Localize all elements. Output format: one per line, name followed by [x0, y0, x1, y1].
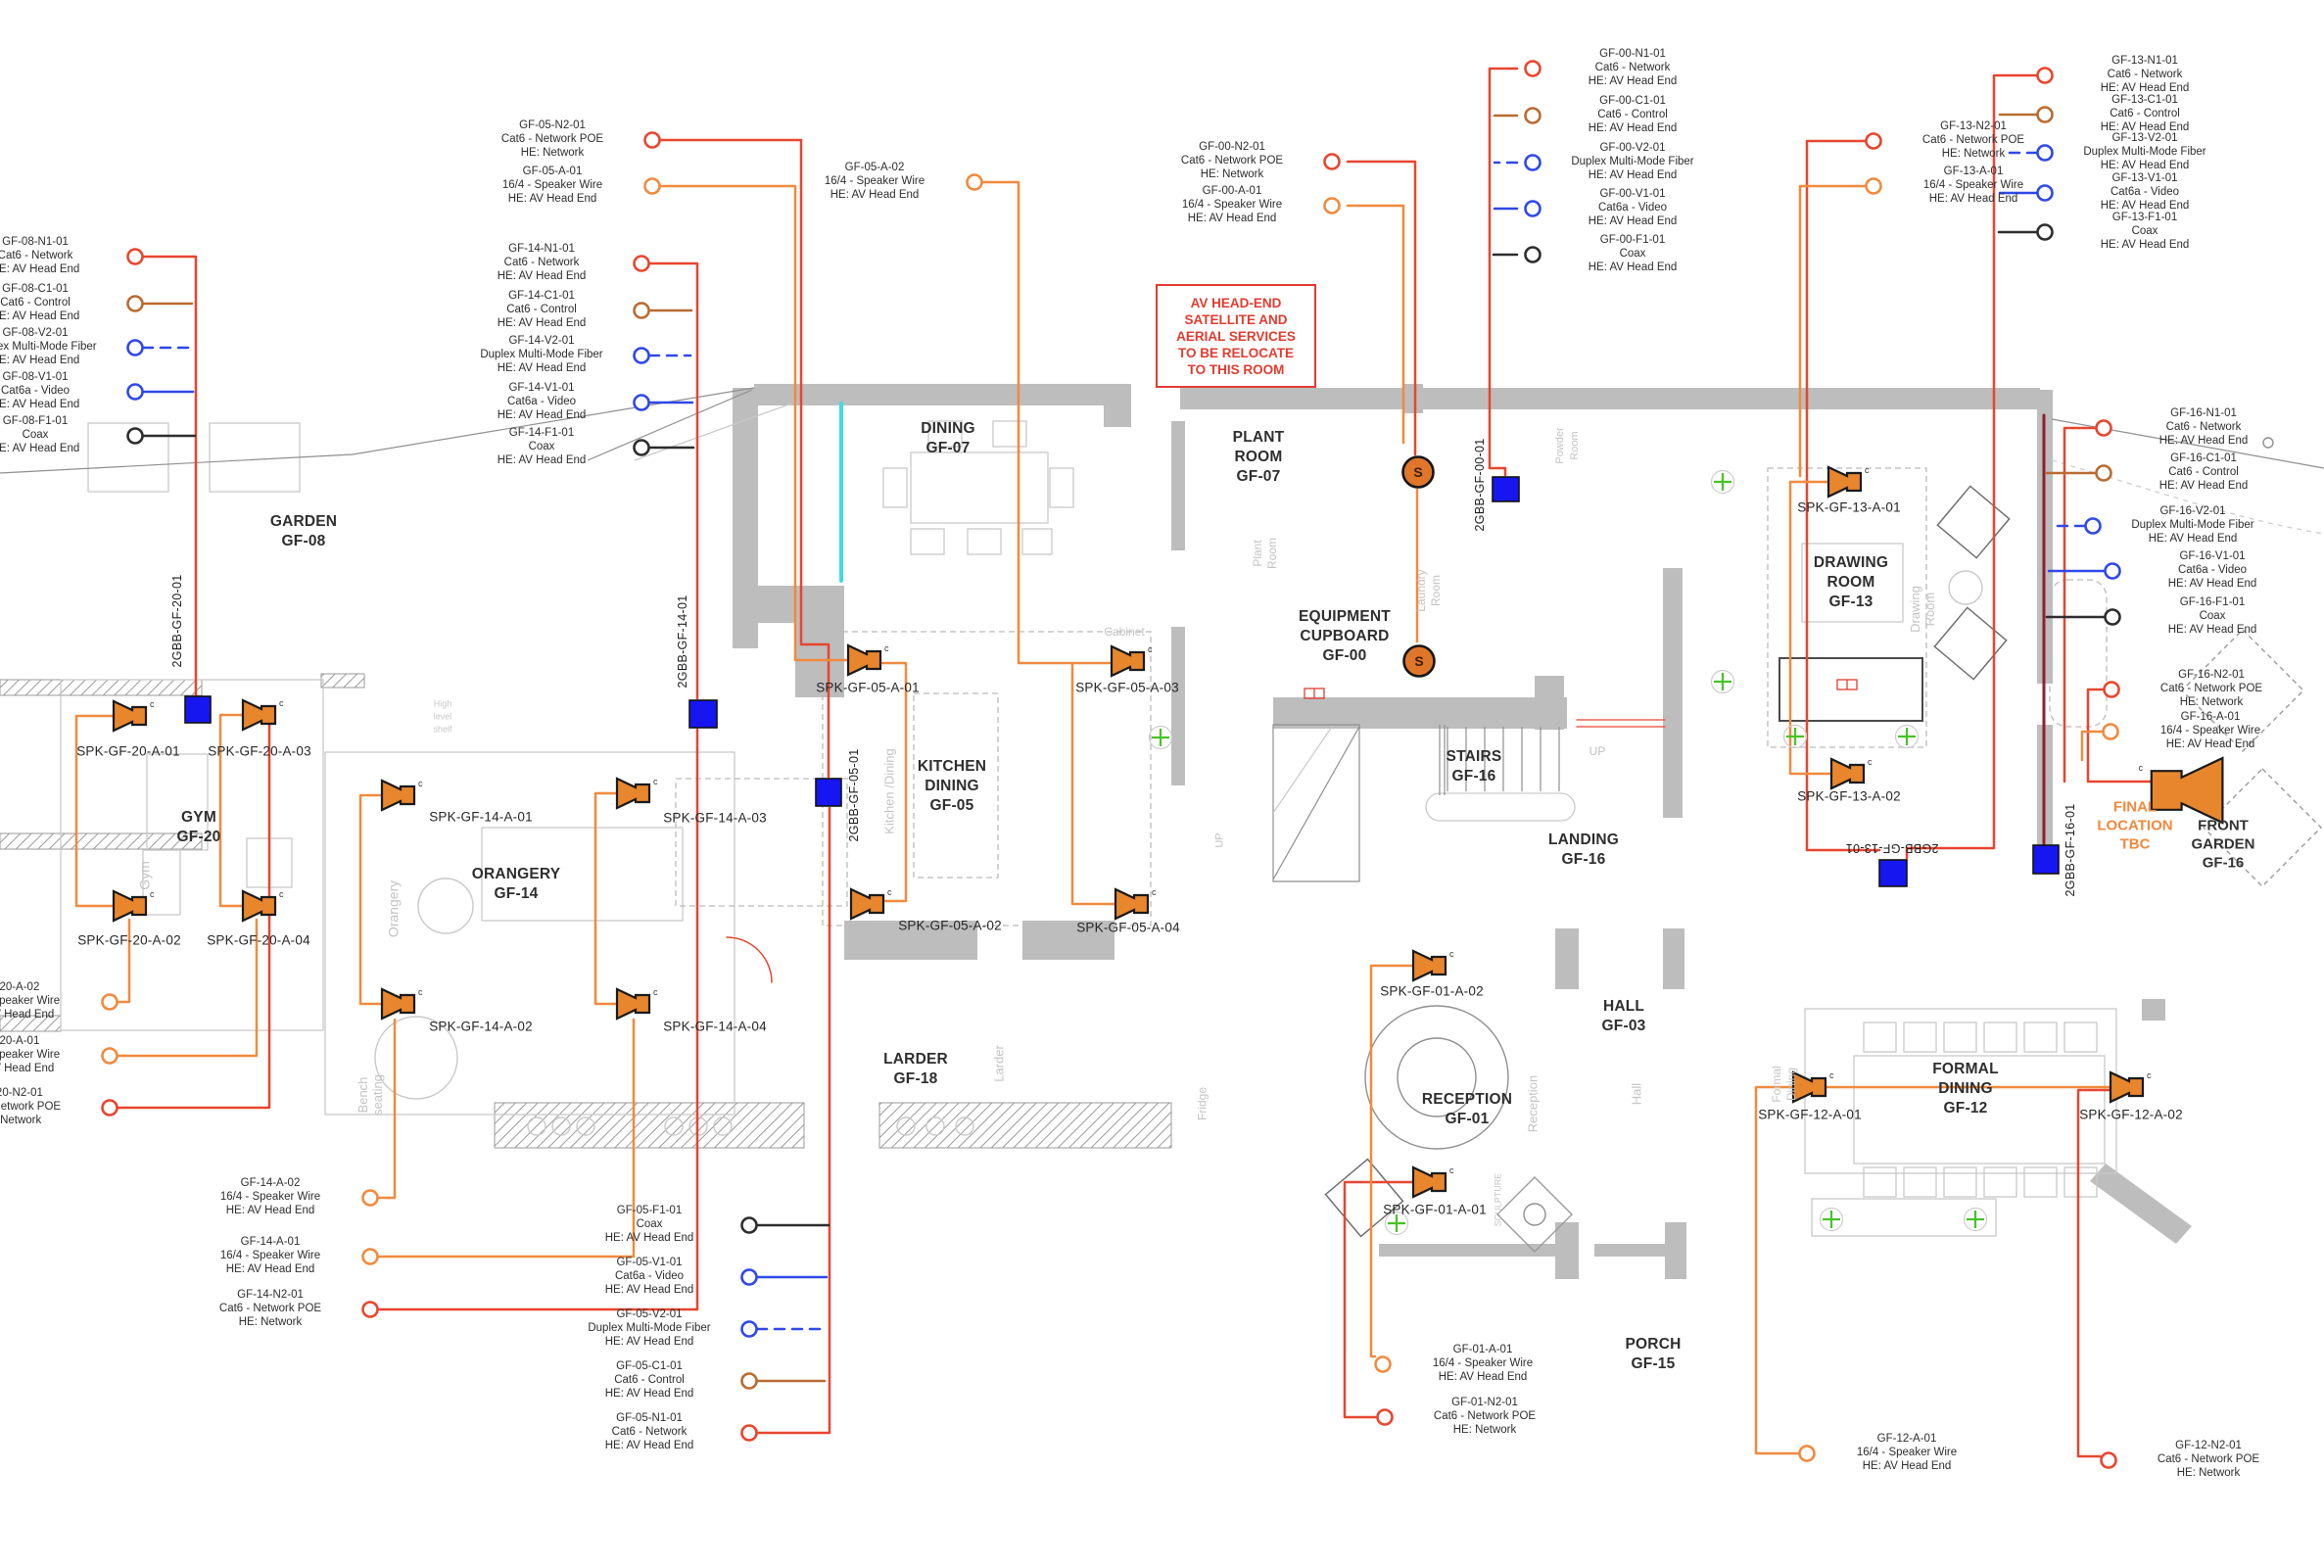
- cable-callout: GF-08-V1-01Cat6a - VideoHE: AV Head End: [0, 371, 122, 411]
- room-label-reception: RECEPTION GF-01: [1422, 1090, 1512, 1129]
- cable-callout-line: 16/4 - Speaker Wire: [183, 1250, 357, 1263]
- cable-callout-line: HE: AV Head End: [0, 310, 122, 324]
- cable-callout: GF-16-C1-01Cat6 - ControlHE: AV Head End: [2116, 452, 2291, 493]
- cable-callout-line: Coax: [2058, 225, 2232, 239]
- room-label-formal-dining: FORMAL DINING GF-12: [1932, 1060, 1999, 1118]
- cable-callout-line: HE: AV Head End: [465, 193, 640, 207]
- cable-callout: GF-00-C1-01Cat6 - ControlHE: AV Head End: [1545, 95, 1720, 135]
- speaker-label: SPK-GF-05-A-01: [816, 681, 920, 695]
- cable-callout: GF-08-C1-01Cat6 - ControlHE: AV Head End: [0, 283, 122, 323]
- cable-callout-line: HE: AV Head End: [2058, 239, 2232, 253]
- cable-callout-line: 16/4 - Speaker Wire: [1886, 179, 2061, 193]
- cable-callout: GF-14-N1-01Cat6 - NetworkHE: AV Head End: [454, 243, 629, 283]
- cable-callout-line: GF-14-A-01: [183, 1236, 357, 1250]
- speaker-label: SPK-GF-01-A-01: [1383, 1203, 1487, 1217]
- cable-callout-line: Cat6a - Video: [2125, 564, 2300, 578]
- cable-callout-line: HE: AV Head End: [0, 443, 122, 456]
- cable-callout-line: GF-00-V1-01: [1545, 188, 1720, 202]
- cable-callout: GF-14-C1-01Cat6 - ControlHE: AV Head End: [454, 290, 629, 330]
- cable-callout: GF-00-N2-01Cat6 - Network POEHE: Network: [1145, 141, 1319, 181]
- label-overlay: 2GBB-GF-20-012GBB-GF-14-012GBB-GF-05-012…: [0, 0, 2324, 1568]
- cable-callout-line: Cat6 - Network POE: [1886, 134, 2061, 148]
- cable-callout-line: GF-00-N1-01: [1545, 48, 1720, 62]
- annotation-high-level-shelf: High level shelf: [433, 698, 451, 736]
- cable-callout-line: 16/4 - Speaker Wire: [0, 995, 97, 1009]
- junction-box-label: 2GBB-GF-20-01: [170, 575, 184, 668]
- cable-callout-line: 16/4 - Speaker Wire: [465, 179, 640, 193]
- cable-callout-line: GF-05-C1-01: [562, 1360, 736, 1374]
- room-label-kitchen-dining: KITCHEN DINING GF-05: [918, 757, 986, 816]
- faint-room-label: Gym: [138, 861, 153, 890]
- cable-callout-line: HE: AV Head End: [1545, 122, 1720, 136]
- room-label-dining: DINING GF-07: [921, 419, 974, 458]
- cable-callout-line: HE: Network: [2121, 1467, 2296, 1481]
- cable-callout-line: GF-16-F1-01: [2125, 596, 2300, 610]
- cable-callout-line: HE: Network: [1145, 168, 1319, 182]
- cable-callout-line: GF-20-A-02: [0, 981, 97, 995]
- relocation-note-line: SATELLITE AND: [1185, 311, 1288, 328]
- cable-callout-line: GF-08-N1-01: [0, 236, 122, 250]
- cable-callout: GF-05-A-0116/4 - Speaker WireHE: AV Head…: [465, 166, 640, 206]
- cable-callout-line: HE: AV Head End: [1145, 213, 1319, 226]
- annotation-final-location-tbc: FINAL LOCATION TBC: [2097, 798, 2172, 854]
- cable-callout: GF-05-F1-01CoaxHE: AV Head End: [562, 1205, 736, 1245]
- cable-callout-line: Cat6a - Video: [2058, 186, 2232, 200]
- cable-callout: GF-05-V2-01Duplex Multi-Mode FiberHE: AV…: [562, 1308, 736, 1349]
- cable-callout-line: HE: Network: [0, 1115, 97, 1128]
- cable-callout: GF-14-F1-01CoaxHE: AV Head End: [454, 427, 629, 467]
- cable-callout-line: GF-08-F1-01: [0, 415, 122, 429]
- speaker-label: SPK-GF-14-A-04: [663, 1020, 767, 1034]
- cable-callout-line: Cat6 - Network POE: [1398, 1410, 1572, 1424]
- annotation-up-stairs: UP: [1589, 743, 1606, 759]
- cable-callout-line: GF-14-F1-01: [454, 427, 629, 441]
- cable-callout: GF-05-N2-01Cat6 - Network POEHE: Network: [465, 119, 640, 160]
- cable-callout-line: HE: AV Head End: [1820, 1460, 1994, 1474]
- cable-callout-line: GF-16-V1-01: [2125, 550, 2300, 564]
- cable-callout-line: GF-00-V2-01: [1545, 142, 1720, 156]
- cable-callout: GF-00-F1-01CoaxHE: AV Head End: [1545, 234, 1720, 274]
- cable-callout-line: Cat6 - Network POE: [1145, 155, 1319, 168]
- junction-box-label: 2GBB-GF-16-01: [2063, 804, 2077, 897]
- cable-callout-line: GF-16-N2-01: [2124, 669, 2299, 683]
- cable-callout: GF-13-N2-01Cat6 - Network POEHE: Network: [1886, 120, 2061, 161]
- cable-callout: GF-05-C1-01Cat6 - ControlHE: AV Head End: [562, 1360, 736, 1401]
- annotation-cabinet: Cabinet: [1104, 624, 1144, 640]
- cable-callout-line: Cat6 - Control: [0, 297, 122, 310]
- cable-callout-line: GF-08-V1-01: [0, 371, 122, 385]
- cable-callout-line: HE: AV Head End: [562, 1232, 736, 1246]
- cable-callout-line: Coax: [562, 1218, 736, 1232]
- cable-callout-line: GF-12-A-01: [1820, 1433, 1994, 1447]
- cable-callout-line: HE: AV Head End: [2058, 160, 2232, 173]
- faint-room-label: Kitchen /Dining: [882, 748, 897, 833]
- cable-callout-line: HE: AV Head End: [1545, 75, 1720, 89]
- cable-callout-line: GF-13-F1-01: [2058, 212, 2232, 225]
- cable-callout-line: Cat6 - Network: [0, 250, 122, 263]
- cable-callout-line: GF-14-V2-01: [454, 335, 629, 349]
- cable-callout-line: GF-12-N2-01: [2121, 1440, 2296, 1453]
- cable-callout-line: HE: AV Head End: [454, 454, 629, 468]
- cable-callout-line: Cat6 - Network: [2058, 69, 2232, 82]
- cable-callout-line: GF-05-A-02: [787, 162, 962, 175]
- cable-callout-line: Coax: [454, 441, 629, 454]
- cable-callout-line: HE: AV Head End: [562, 1440, 736, 1453]
- cable-callout-line: Duplex Multi-Mode Fiber: [2106, 519, 2280, 533]
- cable-callout-line: HE: AV Head End: [1545, 261, 1720, 275]
- cable-callout-line: 16/4 - Speaker Wire: [1820, 1447, 1994, 1460]
- relocation-note-line: TO BE RELOCATE: [1178, 345, 1294, 361]
- cable-callout-line: GF-00-N2-01: [1145, 141, 1319, 155]
- cable-callout-line: Cat6 - Network POE: [465, 133, 640, 147]
- cable-callout: GF-12-A-0116/4 - Speaker WireHE: AV Head…: [1820, 1433, 1994, 1473]
- cable-callout-line: Cat6a - Video: [454, 396, 629, 409]
- speaker-label: SPK-GF-14-A-01: [429, 810, 533, 825]
- cable-callout: GF-16-V1-01Cat6a - VideoHE: AV Head End: [2125, 550, 2300, 591]
- cable-callout: GF-16-V2-01Duplex Multi-Mode FiberHE: AV…: [2106, 505, 2280, 546]
- cable-callout-line: HE: AV Head End: [2106, 533, 2280, 546]
- cable-callout-line: GF-05-N1-01: [562, 1412, 736, 1426]
- cable-callout: GF-16-N2-01Cat6 - Network POEHE: Network: [2124, 669, 2299, 709]
- cable-callout-line: GF-13-N1-01: [2058, 55, 2232, 69]
- cable-callout-line: HE: AV Head End: [183, 1263, 357, 1277]
- faint-room-label: Powder Room: [1553, 427, 1583, 463]
- cable-callout-line: GF-14-N1-01: [454, 243, 629, 257]
- cable-callout-line: GF-13-A-01: [1886, 166, 2061, 179]
- relocation-note-line: AERIAL SERVICES: [1176, 328, 1296, 345]
- cable-callout-line: HE: AV Head End: [0, 399, 122, 412]
- cable-callout-line: HE: AV Head End: [562, 1388, 736, 1402]
- cable-callout: GF-01-A-0116/4 - Speaker WireHE: AV Head…: [1396, 1344, 1570, 1384]
- annotation-up-reception: UP: [1213, 832, 1228, 847]
- speaker-label: SPK-GF-01-A-02: [1380, 984, 1484, 999]
- junction-box-label: 2GBB-GF-13-01: [1846, 841, 1939, 855]
- cable-callout-line: GF-05-V1-01: [562, 1257, 736, 1270]
- junction-box-label: 2GBB-GF-14-01: [676, 595, 689, 689]
- cable-callout: GF-05-N1-01Cat6 - NetworkHE: AV Head End: [562, 1412, 736, 1452]
- cable-callout-line: 16/4 - Speaker Wire: [787, 175, 962, 189]
- cable-callout: GF-13-V1-01Cat6a - VideoHE: AV Head End: [2058, 172, 2232, 213]
- cable-callout-line: Cat6a - Video: [0, 385, 122, 399]
- cable-callout: GF-12-N2-01Cat6 - Network POEHE: Network: [2121, 1440, 2296, 1480]
- cable-callout: GF-14-A-0216/4 - Speaker WireHE: AV Head…: [183, 1177, 357, 1217]
- cable-callout: GF-13-F1-01CoaxHE: AV Head End: [2058, 212, 2232, 252]
- cable-callout-line: Cat6 - Network POE: [2124, 683, 2299, 696]
- cable-callout-line: GF-13-N2-01: [1886, 120, 2061, 134]
- cable-callout: GF-01-N2-01Cat6 - Network POEHE: Network: [1398, 1397, 1572, 1437]
- cable-callout-line: GF-14-A-02: [183, 1177, 357, 1191]
- room-label-porch: PORCH GF-15: [1626, 1335, 1682, 1374]
- cable-callout-line: GF-14-N2-01: [183, 1289, 357, 1303]
- cable-callout-line: Cat6 - Control: [1545, 109, 1720, 122]
- faint-room-label: Hall: [1630, 1083, 1644, 1105]
- cable-callout-line: GF-01-N2-01: [1398, 1397, 1572, 1410]
- cable-callout-line: GF-05-F1-01: [562, 1205, 736, 1218]
- cable-callout-line: 16/4 - Speaker Wire: [1145, 199, 1319, 213]
- speaker-label: SPK-GF-13-A-02: [1797, 789, 1901, 804]
- cable-callout-line: Cat6 - Network: [1545, 62, 1720, 75]
- faint-room-label: SCULPTURE: [1492, 1173, 1506, 1227]
- cable-callout-line: HE: AV Head End: [562, 1336, 736, 1350]
- cable-callout: GF-00-V2-01Duplex Multi-Mode FiberHE: AV…: [1545, 142, 1720, 182]
- cable-callout-line: Cat6 - Control: [2058, 108, 2232, 121]
- cable-callout: GF-14-N2-01Cat6 - Network POEHE: Network: [183, 1289, 357, 1329]
- relocation-note-line: TO THIS ROOM: [1188, 361, 1285, 378]
- cable-callout-line: HE: AV Head End: [454, 317, 629, 331]
- cable-callout-line: Cat6a - Video: [1545, 202, 1720, 215]
- cable-callout-line: Duplex Multi-Mode Fiber: [2058, 146, 2232, 160]
- cable-callout-line: Cat6 - Control: [454, 304, 629, 317]
- cable-callout-line: Duplex Multi-Mode Fiber: [562, 1322, 736, 1336]
- cable-callout: GF-13-C1-01Cat6 - ControlHE: AV Head End: [2058, 94, 2232, 134]
- room-label-garden: GARDEN GF-08: [270, 512, 337, 551]
- speaker-label: SPK-GF-13-A-01: [1797, 500, 1901, 515]
- faint-room-label: Reception: [1526, 1075, 1541, 1133]
- cable-callout-line: GF-16-A-01: [2123, 711, 2298, 725]
- speaker-label: SPK-GF-20-A-02: [77, 933, 181, 948]
- cable-callout-line: HE: Network: [183, 1316, 357, 1330]
- cable-callout-line: Cat6 - Control: [562, 1374, 736, 1388]
- speaker-label: SPK-GF-05-A-04: [1076, 921, 1180, 935]
- faint-room-label: Plant Room: [1251, 538, 1280, 569]
- cable-callout-line: GF-13-V2-01: [2058, 132, 2232, 146]
- cable-callout-line: HE: AV Head End: [454, 362, 629, 376]
- cable-callout-line: Cat6 - Network POE: [183, 1303, 357, 1316]
- junction-box-label: 2GBB-GF-05-01: [847, 749, 861, 842]
- cable-callout-line: HE: AV Head End: [0, 355, 122, 368]
- cable-callout-line: GF-05-N2-01: [465, 119, 640, 133]
- cable-callout-line: 16/4 - Speaker Wire: [183, 1191, 357, 1205]
- cable-callout-line: Cat6 - Network: [2116, 421, 2291, 435]
- cable-callout-line: HE: AV Head End: [2123, 738, 2298, 752]
- cable-callout-line: Coax: [1545, 248, 1720, 261]
- faint-room-label: Orangery: [387, 880, 402, 937]
- cable-callout-line: Cat6 - Network: [454, 257, 629, 270]
- cable-callout-line: Cat6 - Network POE: [2121, 1453, 2296, 1467]
- cable-callout: GF-20-A-0216/4 - Speaker WireHE: AV Head…: [0, 981, 97, 1022]
- room-label-larder: LARDER GF-18: [883, 1050, 948, 1089]
- cable-callout-line: GF-00-C1-01: [1545, 95, 1720, 109]
- cable-callout-line: GF-08-C1-01: [0, 283, 122, 297]
- cable-callout: GF-16-A-0116/4 - Speaker WireHE: AV Head…: [2123, 711, 2298, 751]
- cable-callout-line: HE: AV Head End: [1886, 193, 2061, 207]
- cable-callout-line: GF-01-A-01: [1396, 1344, 1570, 1357]
- cable-callout-line: GF-16-V2-01: [2106, 505, 2280, 519]
- cable-callout-line: HE: AV Head End: [1545, 169, 1720, 183]
- floorplan-canvas: SSccccccccccccccccccc 2GBB-GF-20-012GBB-…: [0, 0, 2324, 1568]
- room-label-equipment-cupboard: EQUIPMENT CUPBOARD GF-00: [1299, 607, 1391, 666]
- speaker-label: SPK-GF-20-A-01: [76, 744, 180, 759]
- cable-callout-line: HE: Network: [2124, 696, 2299, 710]
- room-label-drawing-room: DRAWING ROOM GF-13: [1814, 553, 1888, 612]
- speaker-label: SPK-GF-20-A-03: [208, 744, 311, 759]
- faint-room-label: Formal Dining: [1770, 1066, 1799, 1102]
- cable-callout-line: GF-13-C1-01: [2058, 94, 2232, 108]
- annotation-front-garden: FRONT GARDEN GF-16: [2191, 817, 2254, 873]
- faint-room-label: Bench seating: [356, 1074, 385, 1116]
- cable-callout-line: HE: AV Head End: [0, 1063, 97, 1076]
- cable-callout: GF-05-A-0216/4 - Speaker WireHE: AV Head…: [787, 162, 962, 202]
- speaker-label: SPK-GF-12-A-02: [2079, 1108, 2183, 1122]
- cable-callout: GF-00-N1-01Cat6 - NetworkHE: AV Head End: [1545, 48, 1720, 88]
- faint-room-label: Drawing Room: [1908, 586, 1937, 633]
- faint-room-label: Larder: [992, 1045, 1007, 1082]
- cable-callout-line: HE: AV Head End: [0, 263, 122, 277]
- speaker-label: SPK-GF-05-A-02: [898, 919, 1002, 933]
- cable-callout: GF-13-N1-01Cat6 - NetworkHE: AV Head End: [2058, 55, 2232, 95]
- cable-callout: GF-16-N1-01Cat6 - NetworkHE: AV Head End: [2116, 407, 2291, 448]
- cable-callout: GF-08-N1-01Cat6 - NetworkHE: AV Head End: [0, 236, 122, 276]
- cable-callout-line: GF-14-V1-01: [454, 382, 629, 396]
- cable-callout-line: Duplex Multi-Mode Fiber: [1545, 156, 1720, 169]
- junction-box-label: 2GBB-GF-00-01: [1473, 439, 1487, 532]
- cable-callout-line: Cat6 - Network POE: [0, 1101, 97, 1115]
- cable-callout-line: Cat6a - Video: [562, 1270, 736, 1284]
- cable-callout: GF-14-V2-01Duplex Multi-Mode FiberHE: AV…: [454, 335, 629, 375]
- cable-callout-line: HE: AV Head End: [183, 1205, 357, 1218]
- cable-callout: GF-13-A-0116/4 - Speaker WireHE: AV Head…: [1886, 166, 2061, 206]
- cable-callout-line: HE: AV Head End: [454, 270, 629, 284]
- cable-callout-line: HE: AV Head End: [1396, 1371, 1570, 1385]
- faint-room-label: Laundry Room: [1414, 569, 1444, 611]
- speaker-label: SPK-GF-14-A-03: [663, 811, 767, 826]
- cable-callout-line: Cat6 - Control: [2116, 466, 2291, 480]
- speaker-label: SPK-GF-12-A-01: [1758, 1108, 1862, 1122]
- cable-callout-line: HE: AV Head End: [0, 1009, 97, 1022]
- room-label-plant-room: PLANT ROOM GF-07: [1233, 428, 1285, 487]
- cable-callout-line: GF-00-A-01: [1145, 185, 1319, 199]
- cable-callout-line: GF-20-A-01: [0, 1035, 97, 1049]
- cable-callout-line: GF-16-C1-01: [2116, 452, 2291, 466]
- cable-callout-line: HE: AV Head End: [562, 1284, 736, 1298]
- room-label-stairs: STAIRS GF-16: [1447, 747, 1502, 786]
- cable-callout-line: Coax: [2125, 610, 2300, 624]
- cable-callout: GF-05-V1-01Cat6a - VideoHE: AV Head End: [562, 1257, 736, 1297]
- cable-callout: GF-08-V2-01Duplex Multi-Mode FiberHE: AV…: [0, 327, 122, 367]
- cable-callout: GF-13-V2-01Duplex Multi-Mode FiberHE: AV…: [2058, 132, 2232, 172]
- cable-callout-line: HE: Network: [1886, 148, 2061, 162]
- cable-callout-line: GF-13-V1-01: [2058, 172, 2232, 186]
- room-label-landing: LANDING GF-16: [1548, 831, 1619, 870]
- room-label-orangery: ORANGERY GF-14: [472, 865, 561, 904]
- cable-callout-line: HE: AV Head End: [1545, 215, 1720, 229]
- cable-callout: GF-00-A-0116/4 - Speaker WireHE: AV Head…: [1145, 185, 1319, 225]
- cable-callout-line: HE: AV Head End: [2116, 480, 2291, 494]
- cable-callout-line: HE: AV Head End: [2125, 624, 2300, 638]
- cable-callout: GF-14-A-0116/4 - Speaker WireHE: AV Head…: [183, 1236, 357, 1276]
- cable-callout-line: GF-16-N1-01: [2116, 407, 2291, 421]
- cable-callout-line: HE: AV Head End: [2116, 435, 2291, 449]
- relocation-note: AV HEAD-END SATELLITE AND AERIAL SERVICE…: [1156, 284, 1316, 388]
- cable-callout-line: GF-08-V2-01: [0, 327, 122, 341]
- cable-callout-line: GF-05-A-01: [465, 166, 640, 179]
- cable-callout-line: GF-14-C1-01: [454, 290, 629, 304]
- room-label-hall: HALL GF-03: [1602, 997, 1646, 1036]
- cable-callout-line: HE: AV Head End: [787, 189, 962, 203]
- cable-callout-line: Coax: [0, 429, 122, 443]
- cable-callout: GF-20-A-0116/4 - Speaker WireHE: AV Head…: [0, 1035, 97, 1075]
- cable-callout-line: Duplex Multi-Mode Fiber: [0, 341, 122, 355]
- cable-callout-line: HE: AV Head End: [2125, 578, 2300, 592]
- cable-callout-line: GF-20-N2-01: [0, 1087, 97, 1101]
- cable-callout: GF-20-N2-01Cat6 - Network POEHE: Network: [0, 1087, 97, 1127]
- faint-room-label: Fridge: [1196, 1087, 1210, 1120]
- speaker-label: SPK-GF-20-A-04: [207, 933, 310, 948]
- speaker-label: SPK-GF-14-A-02: [429, 1020, 533, 1034]
- cable-callout-line: GF-05-V2-01: [562, 1308, 736, 1322]
- cable-callout: GF-00-V1-01Cat6a - VideoHE: AV Head End: [1545, 188, 1720, 228]
- cable-callout-line: GF-00-F1-01: [1545, 234, 1720, 248]
- room-label-gym: GYM GF-20: [177, 808, 221, 847]
- cable-callout-line: Duplex Multi-Mode Fiber: [454, 349, 629, 362]
- cable-callout-line: 16/4 - Speaker Wire: [1396, 1357, 1570, 1371]
- cable-callout-line: 16/4 - Speaker Wire: [2123, 725, 2298, 738]
- cable-callout-line: HE: Network: [1398, 1424, 1572, 1438]
- cable-callout-line: HE: AV Head End: [454, 409, 629, 423]
- speaker-label: SPK-GF-05-A-03: [1075, 681, 1179, 695]
- cable-callout-line: HE: Network: [465, 147, 640, 161]
- cable-callout-line: 16/4 - Speaker Wire: [0, 1049, 97, 1063]
- cable-callout: GF-16-F1-01CoaxHE: AV Head End: [2125, 596, 2300, 637]
- relocation-note-line: AV HEAD-END: [1191, 295, 1282, 311]
- cable-callout-line: Cat6 - Network: [562, 1426, 736, 1440]
- cable-callout: GF-14-V1-01Cat6a - VideoHE: AV Head End: [454, 382, 629, 422]
- cable-callout: GF-08-F1-01CoaxHE: AV Head End: [0, 415, 122, 455]
